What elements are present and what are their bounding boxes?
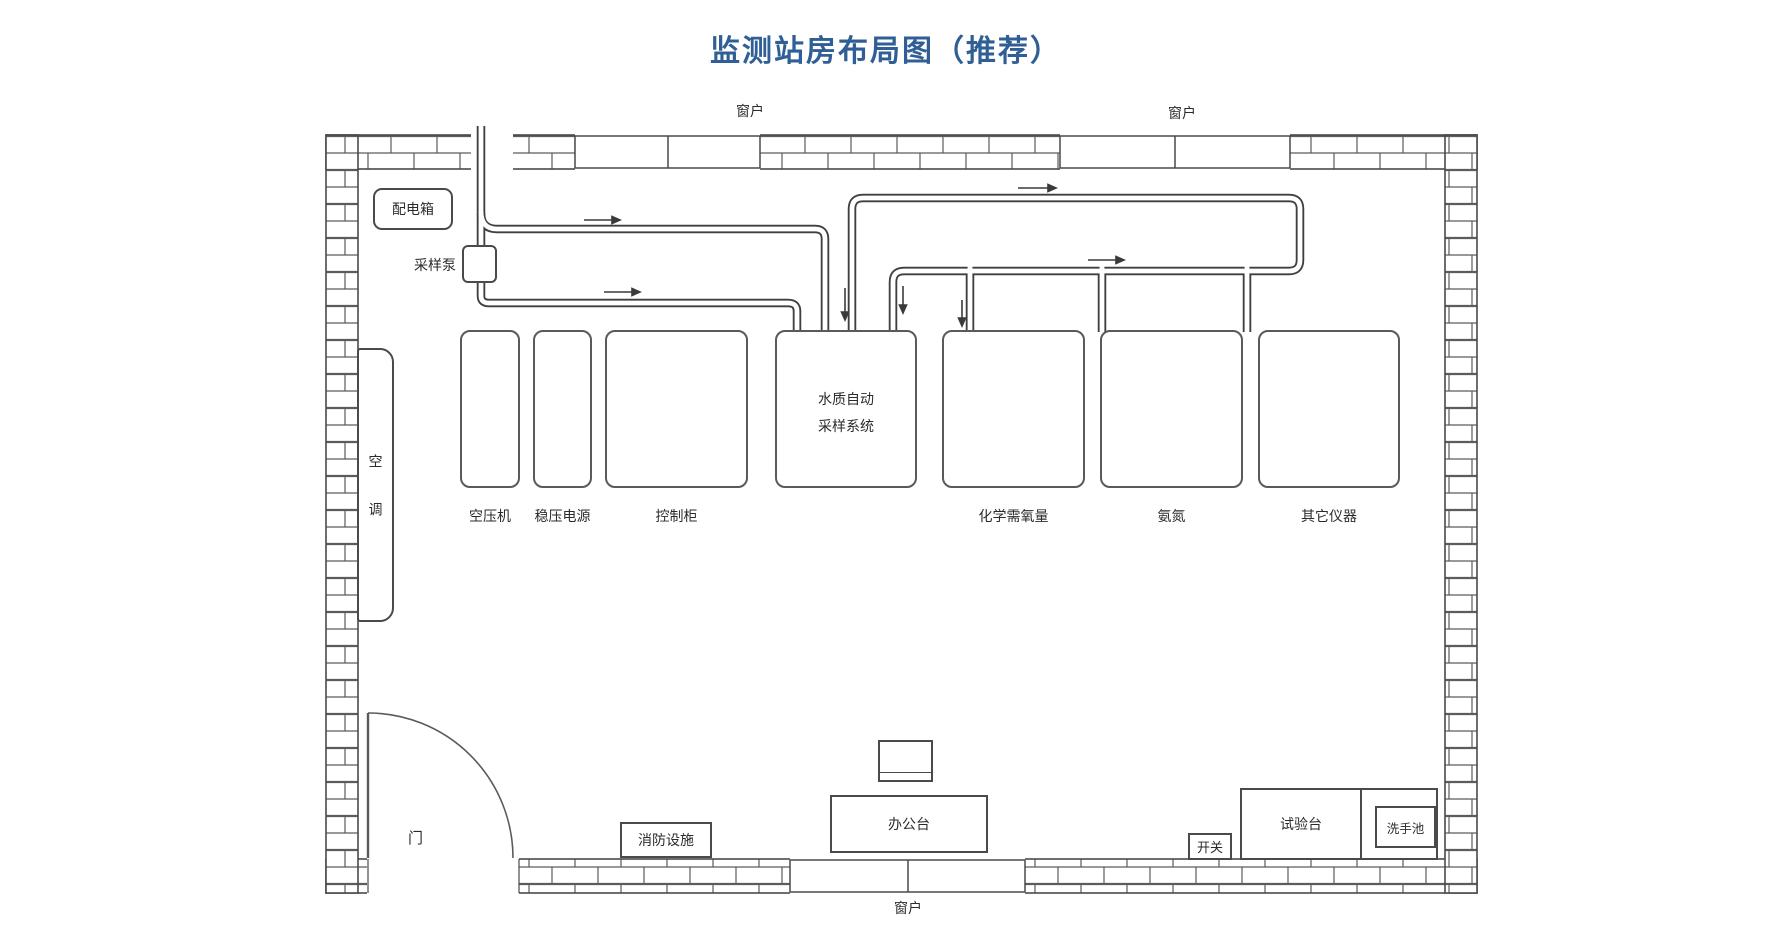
wall-right (1445, 135, 1477, 893)
fire-equipment: 消防设施 (620, 822, 712, 858)
door-swing (368, 713, 513, 858)
door-arc-icon (368, 713, 513, 858)
label-cod-analyzer: 化学需氧量 (942, 506, 1085, 526)
equipment-ammonia-analyzer (1100, 330, 1243, 488)
air-conditioner-label: 空调 (366, 420, 386, 550)
window-label-top-left: 窗户 (720, 101, 780, 121)
fire-equipment-label: 消防设施 (638, 830, 694, 850)
window-top-left-opening (575, 134, 760, 170)
window-label-top-right: 窗户 (1152, 103, 1212, 123)
label-air-compressor: 空压机 (460, 506, 520, 526)
sampling-pump (462, 245, 497, 283)
label-regulated-power: 稳压电源 (533, 506, 592, 526)
label-other-instruments: 其它仪器 (1258, 506, 1400, 526)
test-bench-counter: 试验台 洗手池 (1240, 788, 1438, 860)
door-opening (367, 857, 519, 895)
chair-line (880, 772, 931, 773)
wall-left (326, 135, 358, 893)
equipment-control-cabinet (605, 330, 748, 488)
office-desk: 办公台 (830, 795, 988, 853)
label-control-cabinet: 控制柜 (605, 506, 748, 526)
distribution-box: 配电箱 (373, 188, 453, 230)
bench-divider (1360, 790, 1362, 858)
label-ammonia-analyzer: 氨氮 (1100, 506, 1243, 526)
equipment-regulated-power (533, 330, 592, 488)
window-label-bottom: 窗户 (878, 898, 938, 918)
door-label: 门 (408, 827, 423, 848)
window-top-right-opening (1060, 134, 1290, 170)
switch-label: 开关 (1197, 837, 1223, 856)
window-bottom-opening (790, 858, 1025, 895)
equipment-cod-analyzer (942, 330, 1085, 488)
chair (878, 740, 933, 782)
office-desk-label: 办公台 (888, 814, 930, 834)
wash-basin: 洗手池 (1375, 806, 1436, 848)
test-bench-label: 试验台 (1242, 790, 1360, 858)
floor-plan-page: 监测站房布局图（推荐） (0, 0, 1772, 943)
equipment-air-compressor (460, 330, 520, 488)
switch: 开关 (1188, 833, 1232, 860)
sampling-pump-label: 采样泵 (404, 255, 456, 275)
water-sampling-system-label: 水质自动采样系统 (775, 386, 917, 441)
wash-basin-label: 洗手池 (1387, 818, 1425, 837)
distribution-box-label: 配电箱 (392, 199, 434, 219)
air-conditioner: 空调 (357, 348, 394, 622)
equipment-other-instruments (1258, 330, 1400, 488)
